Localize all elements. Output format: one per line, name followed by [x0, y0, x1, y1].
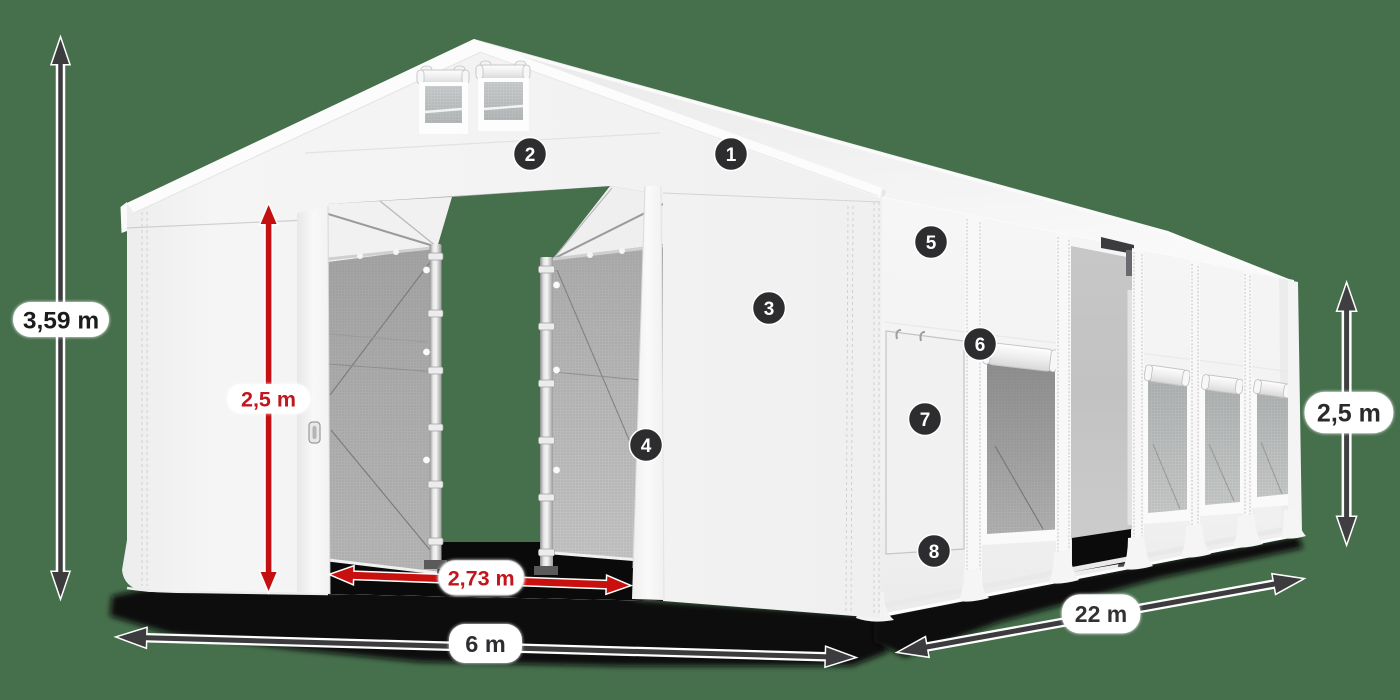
svg-text:2,5 m: 2,5 m — [241, 388, 296, 412]
svg-text:8: 8 — [929, 542, 940, 563]
svg-text:2,5 m: 2,5 m — [1317, 400, 1381, 428]
svg-text:2,73 m: 2,73 m — [448, 567, 515, 591]
svg-text:7: 7 — [920, 410, 931, 431]
svg-text:2: 2 — [525, 145, 536, 166]
svg-text:3,59 m: 3,59 m — [23, 307, 99, 334]
svg-text:3: 3 — [764, 299, 775, 320]
svg-text:6 m: 6 m — [465, 631, 506, 657]
svg-text:4: 4 — [641, 436, 652, 457]
svg-text:6: 6 — [975, 335, 986, 356]
svg-text:1: 1 — [726, 145, 737, 166]
svg-text:22 m: 22 m — [1075, 601, 1127, 627]
svg-text:5: 5 — [926, 233, 937, 254]
